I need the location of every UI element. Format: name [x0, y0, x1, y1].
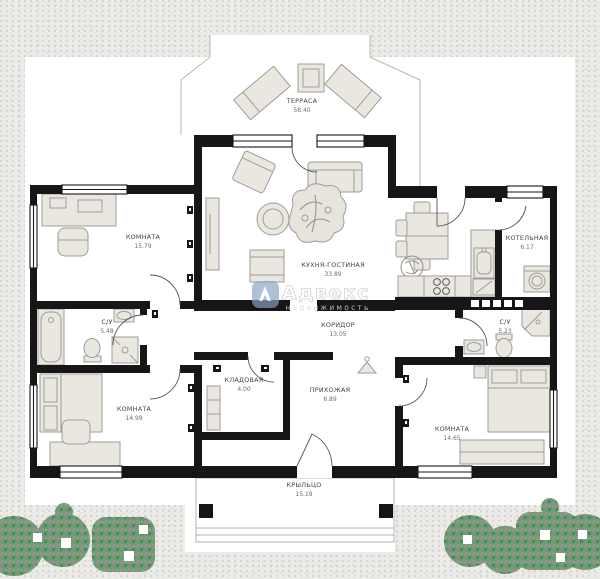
- wall: [140, 301, 147, 315]
- office-chair: [58, 228, 88, 256]
- bathtub: [38, 309, 64, 365]
- window-symbol: [550, 390, 557, 448]
- window-symbol: [30, 205, 37, 268]
- outlet-symbol: [152, 310, 158, 318]
- room-label-room-se: КОМНАТА: [435, 425, 470, 433]
- pillow: [521, 370, 546, 383]
- wall: [395, 186, 437, 198]
- coffee-table: [257, 203, 289, 235]
- tv-bench: [206, 198, 219, 270]
- floor-plan-canvas: ТЕРРАСА 58.40 КОМНАТА 15.79 КУХНЯ-ГОСТИН…: [0, 0, 600, 579]
- toilet: [84, 339, 101, 363]
- wall: [495, 230, 502, 297]
- shower-tray: [112, 337, 138, 363]
- room-area-room-sw: 14.99: [125, 415, 142, 422]
- dining-chair: [414, 202, 430, 213]
- outlet-symbol: [187, 274, 193, 282]
- room-label-corridor: КОРИДОР: [321, 321, 355, 329]
- front-door-opening: [297, 466, 332, 478]
- window-symbol: [418, 466, 472, 478]
- room-area-kitchen-living: 33.89: [324, 271, 341, 278]
- desk-monitor: [50, 198, 66, 208]
- window-symbol: [233, 135, 292, 147]
- wall: [274, 352, 333, 360]
- pillow: [44, 406, 57, 430]
- wall: [395, 357, 557, 365]
- room-area-porch: 15.19: [295, 491, 312, 498]
- outlet-symbol: [188, 384, 194, 392]
- wall: [465, 186, 507, 198]
- room-label-entry-hall: ПРИХОЖАЯ: [310, 386, 351, 394]
- room-label-kitchen-living: КУХНЯ-ГОСТИНАЯ: [301, 261, 365, 269]
- room-label-room-sw: КОМНАТА: [117, 405, 152, 413]
- window-symbol: [62, 185, 127, 194]
- sink: [114, 309, 134, 322]
- room-area-terrace: 58.40: [293, 107, 310, 114]
- dining-chair: [396, 220, 407, 236]
- wall: [455, 310, 463, 318]
- room-label-storage: КЛАДОВАЯ: [225, 376, 264, 384]
- chair: [62, 420, 90, 444]
- floor-plan-drawing: ТЕРРАСА 58.40 КОМНАТА 15.79 КУХНЯ-ГОСТИН…: [0, 0, 600, 579]
- outlet-symbol: [261, 365, 269, 372]
- flue-vents: [471, 300, 523, 307]
- room-area-boiler: 6.17: [520, 244, 534, 251]
- wall: [395, 365, 403, 378]
- bushes-left: [0, 503, 155, 576]
- window-symbol: [60, 466, 122, 478]
- outlet-symbol: [187, 206, 193, 214]
- wall: [194, 135, 202, 311]
- dining-chair: [396, 241, 407, 257]
- room-area-bath-right: 5.23: [498, 328, 512, 335]
- room-area-room-nw: 15.79: [134, 243, 151, 250]
- wall: [194, 432, 290, 440]
- wall: [388, 135, 396, 198]
- room-label-bath-left: С/У: [101, 318, 112, 326]
- wall: [197, 135, 233, 147]
- storage-shelf: [207, 386, 220, 430]
- wall: [495, 198, 502, 202]
- toilet: [496, 334, 512, 358]
- wall: [283, 360, 290, 432]
- room-label-boiler: КОТЕЛЬНАЯ: [506, 234, 549, 242]
- room-label-bath-right: С/У: [499, 318, 510, 326]
- room-area-corridor: 13.05: [329, 331, 346, 338]
- terrace-table: [298, 64, 324, 92]
- window-symbol: [507, 186, 543, 198]
- window-symbol: [317, 135, 364, 147]
- watermark: Адвекс недвижимость: [252, 281, 371, 312]
- plot-top-walkway: [210, 35, 370, 59]
- armchair: [250, 250, 284, 282]
- bed: [488, 366, 550, 432]
- desk: [42, 194, 116, 226]
- outlet-symbol: [403, 375, 409, 383]
- room-label-room-nw: КОМНАТА: [126, 233, 161, 241]
- dining-chair: [414, 259, 430, 270]
- room-area-room-se: 14.65: [443, 435, 460, 442]
- watermark-brand: Адвекс: [282, 282, 370, 304]
- outlet-symbol: [187, 240, 193, 248]
- watermark-tagline: недвижимость: [285, 303, 370, 312]
- wall: [30, 301, 150, 309]
- desk: [50, 442, 120, 466]
- outlet-symbol: [403, 419, 409, 427]
- bushes-right: [444, 498, 600, 574]
- room-area-storage: 4.00: [237, 386, 251, 393]
- wall: [194, 352, 248, 360]
- outlet-symbol: [188, 424, 194, 432]
- nightstand: [474, 366, 486, 378]
- outlet-symbol: [213, 365, 221, 372]
- room-area-entry-hall: 6.89: [323, 396, 337, 403]
- window-symbol: [30, 385, 37, 448]
- wardrobe: [460, 440, 544, 464]
- washing-machine: [524, 266, 550, 292]
- wall: [395, 406, 403, 466]
- sink: [464, 340, 484, 354]
- porch-column: [199, 504, 213, 518]
- room-label-terrace: ТЕРРАСА: [286, 97, 318, 105]
- pillow: [492, 370, 517, 383]
- room-area-bath-left: 5.48: [100, 328, 114, 335]
- porch-column: [379, 504, 393, 518]
- pillow: [44, 378, 57, 402]
- room-label-porch: КРЫЛЬЦО: [287, 481, 322, 489]
- wall: [194, 365, 202, 466]
- wall: [30, 365, 150, 373]
- desk-item: [78, 200, 102, 212]
